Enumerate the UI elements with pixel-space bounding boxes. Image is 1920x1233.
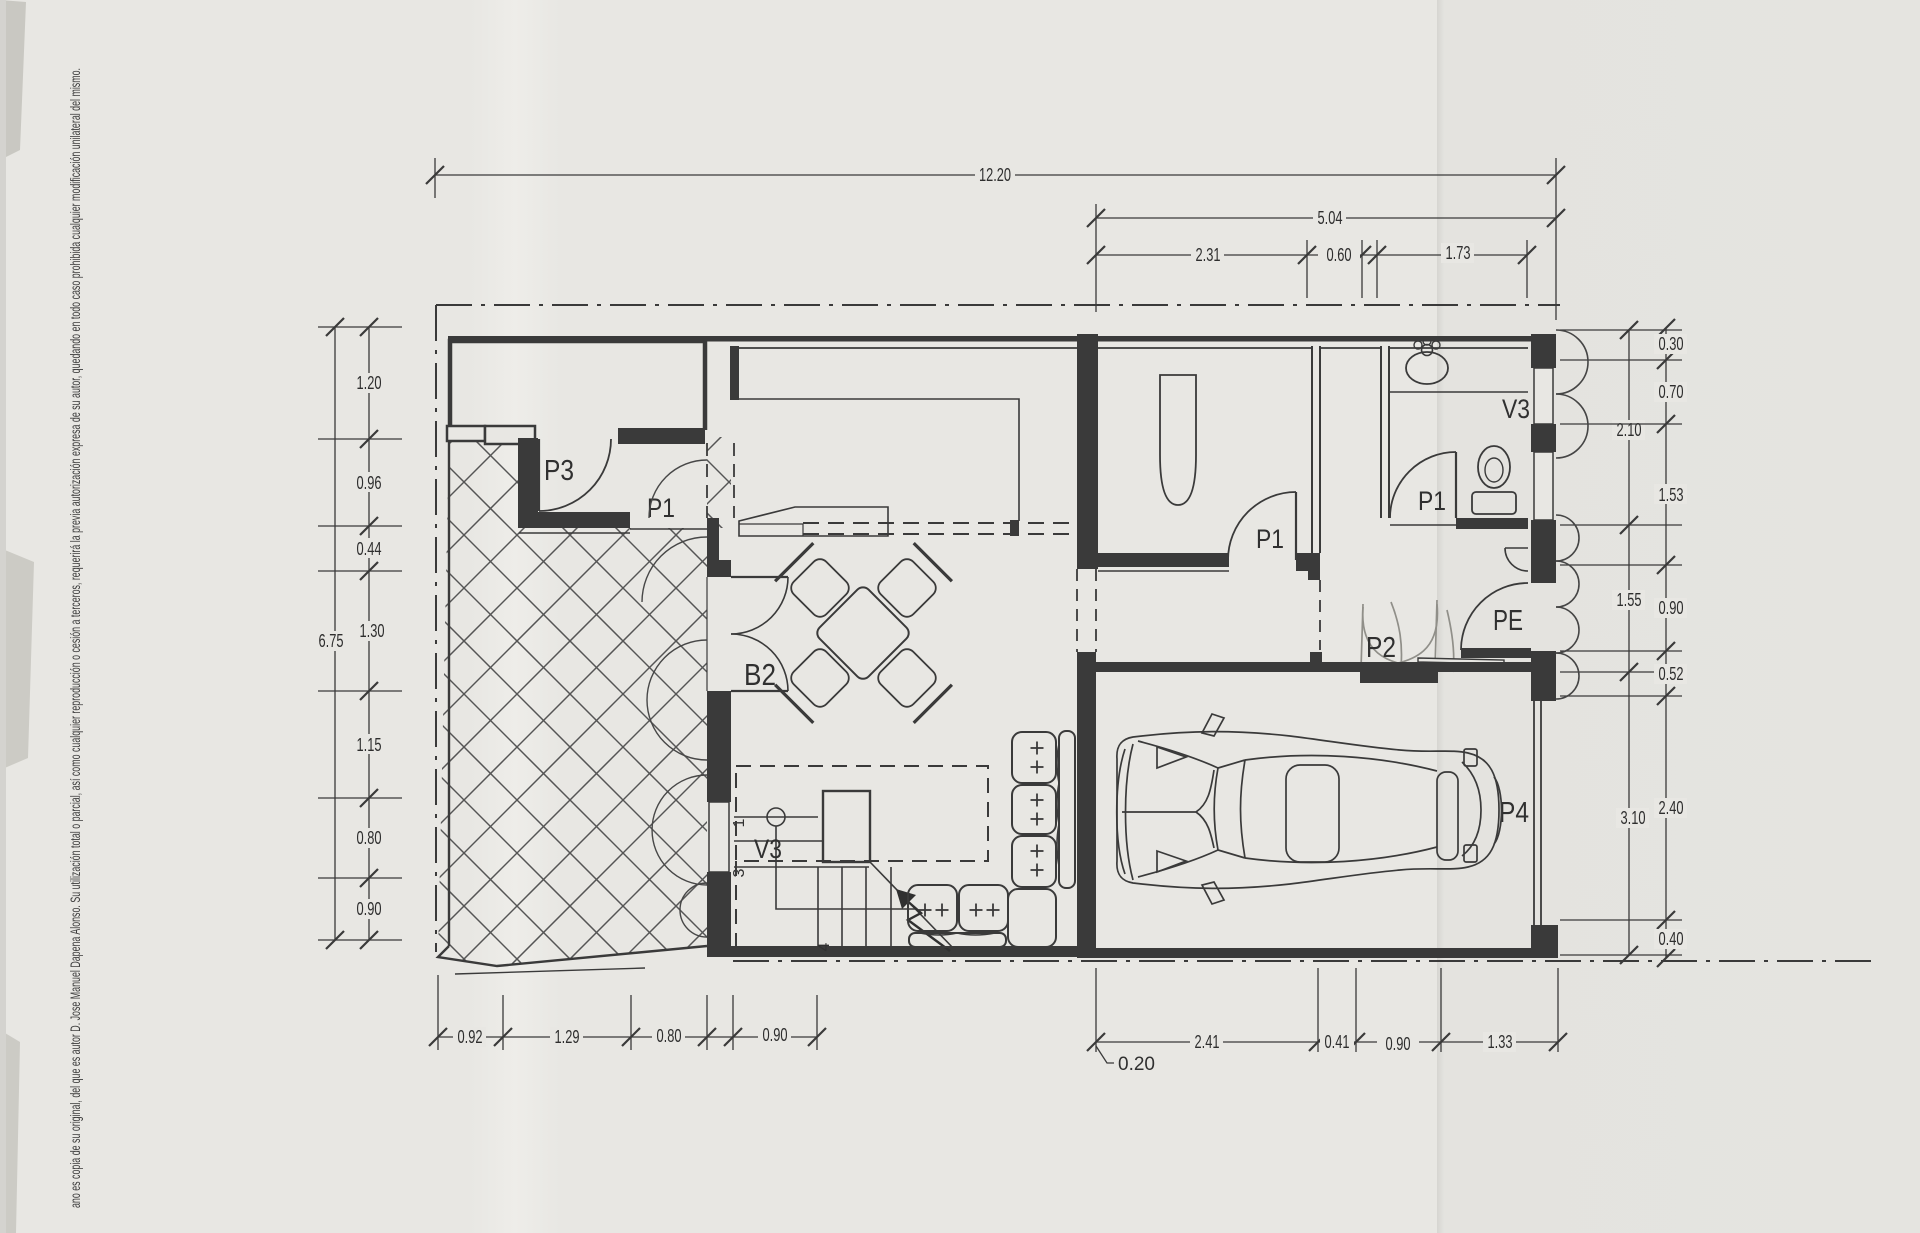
svg-text:2.41: 2.41: [1195, 1032, 1220, 1052]
svg-text:P1: P1: [647, 493, 675, 523]
svg-text:0.30: 0.30: [1659, 334, 1684, 354]
svg-text:1.15: 1.15: [357, 735, 382, 755]
svg-text:V3: V3: [754, 834, 782, 864]
svg-text:P1: P1: [1418, 486, 1446, 516]
svg-text:5.04: 5.04: [1318, 208, 1343, 228]
svg-text:1.20: 1.20: [357, 373, 382, 393]
svg-text:1.33: 1.33: [1488, 1032, 1513, 1052]
svg-text:P1: P1: [1256, 524, 1284, 554]
svg-text:0.90: 0.90: [763, 1025, 788, 1045]
svg-text:0.52: 0.52: [1659, 664, 1684, 684]
svg-text:0.90: 0.90: [357, 899, 382, 919]
svg-text:3: 3: [731, 868, 748, 877]
svg-text:0.44: 0.44: [357, 539, 382, 559]
svg-text:0.60: 0.60: [1327, 245, 1352, 265]
svg-text:0.80: 0.80: [357, 828, 382, 848]
svg-text:B2: B2: [744, 657, 776, 692]
svg-text:0.80: 0.80: [657, 1026, 682, 1046]
svg-text:1.30: 1.30: [360, 621, 385, 641]
svg-text:1: 1: [731, 818, 748, 827]
svg-text:0.40: 0.40: [1659, 929, 1684, 949]
svg-text:12.20: 12.20: [979, 165, 1011, 185]
svg-text:P3: P3: [544, 455, 574, 487]
svg-text:PE: PE: [1493, 605, 1523, 637]
svg-text:2.31: 2.31: [1196, 245, 1221, 265]
svg-text:4: 4: [816, 942, 833, 951]
svg-text:0.20: 0.20: [1118, 1054, 1155, 1075]
svg-text:0.90: 0.90: [1659, 598, 1684, 618]
svg-text:P4: P4: [1499, 797, 1529, 829]
svg-text:P2: P2: [1366, 632, 1396, 664]
svg-text:0.90: 0.90: [1386, 1034, 1411, 1054]
svg-text:V3: V3: [1502, 394, 1530, 424]
svg-text:6.75: 6.75: [319, 631, 344, 651]
svg-text:2.40: 2.40: [1659, 798, 1684, 818]
svg-text:1.55: 1.55: [1617, 590, 1642, 610]
svg-text:1.73: 1.73: [1446, 243, 1471, 263]
svg-text:0.92: 0.92: [458, 1027, 483, 1047]
svg-text:3.10: 3.10: [1621, 808, 1646, 828]
svg-text:0.41: 0.41: [1325, 1032, 1350, 1052]
svg-text:2.10: 2.10: [1617, 420, 1642, 440]
svg-text:ano es copia de su original, d: ano es copia de su original, del que es …: [68, 68, 83, 1208]
svg-text:0.70: 0.70: [1659, 382, 1684, 402]
svg-text:1.53: 1.53: [1659, 485, 1684, 505]
svg-text:0.96: 0.96: [357, 473, 382, 493]
svg-text:1.29: 1.29: [555, 1027, 580, 1047]
